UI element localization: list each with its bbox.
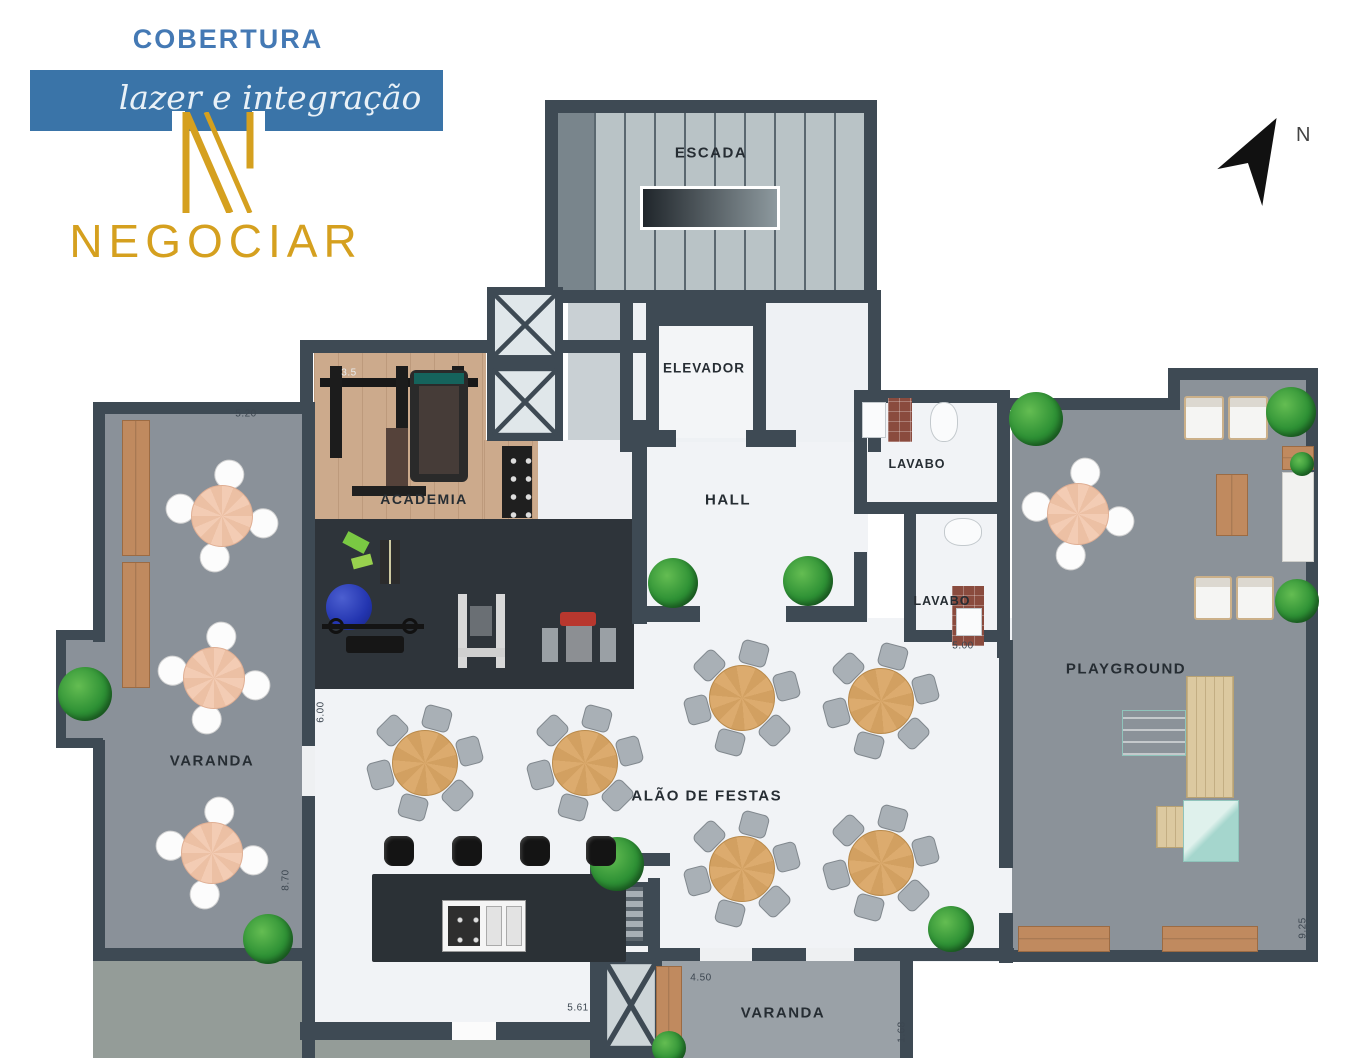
- wall: [93, 402, 105, 642]
- wall: [997, 390, 1010, 658]
- dimension-label: 5.20: [235, 409, 256, 420]
- dimension-label: 4.50: [690, 973, 711, 984]
- sink: [862, 402, 886, 438]
- bar-stool: [520, 836, 550, 866]
- sink-panel: [506, 906, 522, 946]
- bar-stool: [384, 836, 414, 866]
- round-table: [1047, 483, 1109, 545]
- door-opening: [700, 948, 752, 961]
- treadmill-belt: [419, 386, 459, 474]
- plant: [1290, 452, 1314, 476]
- elevator-lintel: [646, 298, 766, 326]
- wall: [545, 100, 558, 303]
- bench: [122, 420, 150, 556]
- room-label-lavabo-bottom: LAVABO: [914, 594, 971, 608]
- round-table: [848, 668, 914, 734]
- door-opening: [452, 1022, 496, 1040]
- sofa: [1282, 472, 1314, 562]
- floor-playground: [1012, 408, 1308, 952]
- room-label-escada: ESCADA: [675, 145, 747, 162]
- dimension-label: 6.00: [316, 701, 327, 722]
- sun-lounger: [1236, 576, 1274, 620]
- round-table: [392, 730, 458, 796]
- wall: [300, 340, 313, 404]
- dimension-label: 9.25: [1298, 917, 1309, 938]
- wall: [646, 298, 659, 438]
- playground-slide: [1183, 800, 1239, 862]
- gym-multistation: [330, 366, 342, 458]
- sun-lounger: [1194, 576, 1232, 620]
- room-label-elevador: ELEVADOR: [663, 361, 745, 376]
- pec-deck-arm: [600, 628, 616, 662]
- wall: [864, 100, 877, 303]
- floor-escada-landing: [558, 113, 594, 290]
- plant: [1266, 387, 1316, 437]
- floor-lower-terrace: [93, 958, 303, 1058]
- wall: [648, 878, 660, 952]
- wall: [302, 796, 315, 1058]
- round-table: [709, 665, 775, 731]
- gym-machine-seat: [470, 606, 492, 636]
- weight-rack: [380, 540, 400, 584]
- wall: [904, 502, 916, 642]
- room-label-academia: ACADEMIA: [380, 491, 467, 507]
- wall: [300, 340, 646, 353]
- plant: [58, 667, 112, 721]
- plant: [648, 558, 698, 608]
- bench: [1018, 926, 1110, 952]
- shaft-icon: [487, 287, 563, 363]
- wall: [862, 502, 998, 514]
- burners: [448, 906, 480, 946]
- round-table: [181, 822, 243, 884]
- toilet: [944, 518, 982, 546]
- round-table: [183, 647, 245, 709]
- wall: [786, 606, 854, 622]
- room-label-lavabo-top: LAVABO: [889, 457, 946, 471]
- gym-bench: [346, 636, 404, 653]
- pec-deck: [560, 612, 596, 626]
- door-opening: [302, 746, 315, 796]
- treadmill-console: [414, 373, 464, 384]
- dimension-label: 5.61: [567, 1003, 588, 1014]
- dimension-label: 8.70: [281, 869, 292, 890]
- shaft-icon: [487, 363, 563, 441]
- wall: [302, 402, 315, 746]
- dimension-label: 3.5: [341, 368, 356, 379]
- round-table: [848, 830, 914, 896]
- compass-north-label: N: [1296, 124, 1310, 147]
- bench: [1216, 474, 1248, 536]
- toilet: [930, 402, 958, 442]
- floor-lower-terrace2: [300, 1040, 592, 1058]
- plant: [783, 556, 833, 606]
- floor-plan: COBERTURA lazer e integração NEGOCIAR N: [0, 0, 1366, 1058]
- plant: [928, 906, 974, 952]
- sink-panel: [486, 906, 502, 946]
- sun-lounger: [1184, 396, 1224, 440]
- plant: [652, 1031, 686, 1058]
- room-label-varanda-bottom: VARANDA: [741, 1005, 825, 1022]
- round-table: [191, 485, 253, 547]
- plant: [1009, 392, 1063, 446]
- barbell-bar: [322, 624, 424, 629]
- wall: [545, 100, 877, 113]
- wall: [753, 298, 766, 438]
- room-label-salao: SALÃO DE FESTAS: [620, 788, 782, 805]
- pec-deck-seat: [566, 626, 592, 662]
- playground-slide: [1122, 710, 1186, 756]
- bar-stool: [586, 836, 616, 866]
- round-table: [552, 730, 618, 796]
- stair-landing: [640, 186, 780, 230]
- brand-tagline: lazer e integração: [100, 78, 440, 117]
- wall: [632, 420, 647, 624]
- pec-deck-arm: [542, 628, 558, 662]
- wall: [93, 740, 105, 960]
- negociar-monogram-icon: [178, 112, 258, 213]
- gym-machine: [458, 648, 505, 657]
- wall: [300, 1022, 592, 1040]
- wall: [93, 402, 315, 414]
- brand-name: NEGOCIAR: [10, 214, 422, 268]
- wall: [746, 430, 796, 447]
- room-label-playground: PLAYGROUND: [1066, 661, 1186, 678]
- floor-lobby: [568, 290, 620, 442]
- wall: [646, 606, 700, 622]
- north-arrow-icon: [1212, 118, 1288, 208]
- bench: [122, 562, 150, 688]
- round-table: [709, 836, 775, 902]
- gym-bench-pad: [386, 428, 408, 486]
- wall: [1168, 368, 1318, 380]
- sun-lounger: [1228, 396, 1268, 440]
- counter-brick: [888, 398, 912, 442]
- dumbbell-rack: [502, 446, 532, 518]
- wall: [854, 552, 867, 622]
- plant: [1275, 579, 1319, 623]
- dimension-label: 1.68: [897, 1021, 908, 1042]
- room-label-hall: HALL: [705, 492, 751, 509]
- floor-passage: [536, 440, 634, 522]
- bar-stool: [452, 836, 482, 866]
- plant: [243, 914, 293, 964]
- brand-title: COBERTURA: [108, 24, 348, 55]
- sink: [956, 608, 982, 636]
- playground-tower: [1186, 676, 1234, 798]
- door-opening: [806, 948, 854, 961]
- wall: [999, 640, 1013, 868]
- bench: [1162, 926, 1258, 952]
- playground-step: [1156, 806, 1184, 848]
- dimension-label: 5.00: [952, 641, 973, 652]
- room-label-varanda-left: VARANDA: [170, 753, 254, 770]
